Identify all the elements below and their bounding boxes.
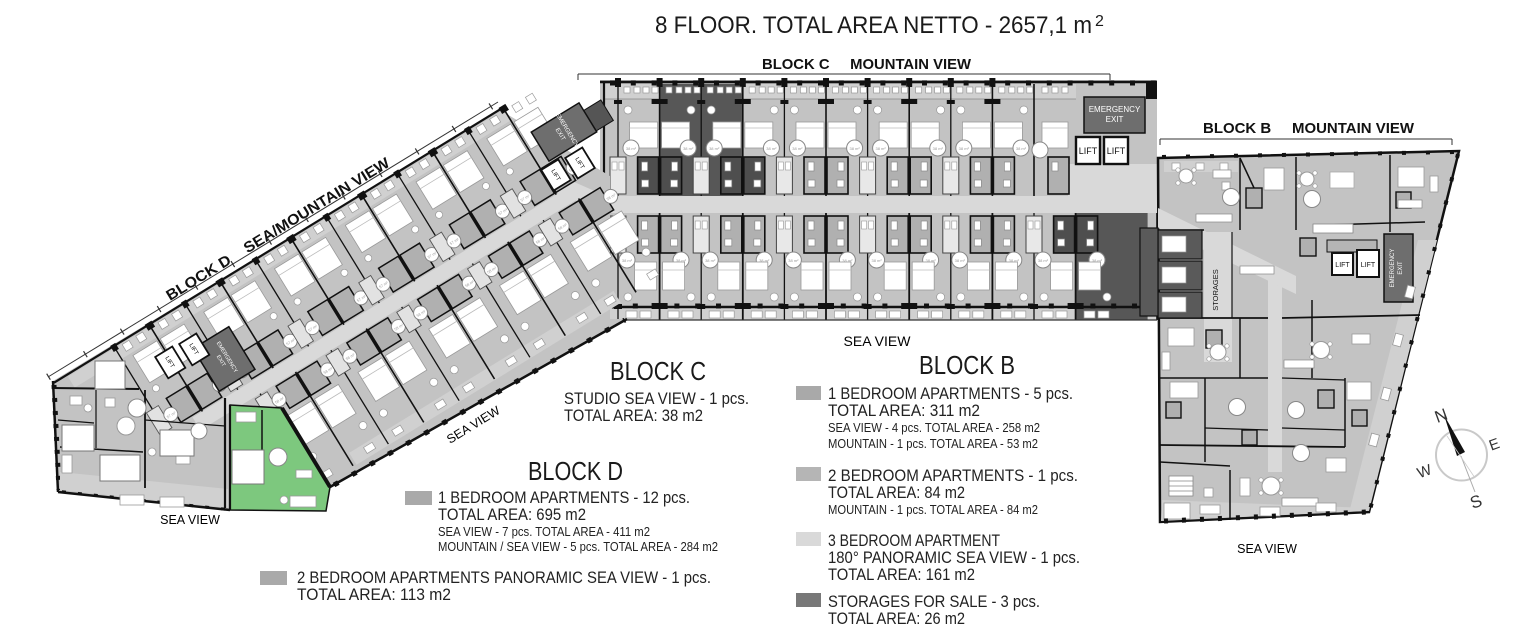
svg-text:BLOCK B MOUNTAIN VIEW: BLOCK B MOUNTAIN VIEW: [1203, 120, 1415, 137]
svg-text:LIFT: LIFT: [1335, 262, 1350, 269]
svg-text:MOUNTAIN - 1 pcs. TOTAL AREA -: MOUNTAIN - 1 pcs. TOTAL AREA - 53 m2: [828, 436, 1038, 451]
svg-text:BLOCK B: BLOCK B: [919, 350, 1015, 380]
svg-text:STORAGES: STORAGES: [1211, 269, 1220, 311]
svg-text:TOTAL AREA: 311 m2: TOTAL AREA: 311 m2: [828, 401, 980, 420]
svg-text:38 m²: 38 m²: [955, 258, 966, 263]
svg-text:38 m²: 38 m²: [788, 258, 799, 263]
svg-text:TOTAL AREA: 695 m2: TOTAL AREA: 695 m2: [438, 505, 586, 524]
svg-text:38 m²: 38 m²: [709, 146, 720, 151]
svg-text:8 FLOOR. TOTAL AREA NETTO - 26: 8 FLOOR. TOTAL AREA NETTO - 2657,1 m: [655, 12, 1092, 39]
svg-text:SEA VIEW: SEA VIEW: [160, 513, 220, 527]
svg-text:38 m²: 38 m²: [1016, 146, 1027, 151]
svg-text:38 m²: 38 m²: [959, 146, 970, 151]
svg-text:BLOCK D: BLOCK D: [528, 456, 623, 486]
svg-text:LIFT: LIFT: [1107, 146, 1126, 156]
svg-text:38 m²: 38 m²: [875, 146, 886, 151]
svg-text:2: 2: [1095, 13, 1104, 30]
svg-text:EXIT: EXIT: [1106, 115, 1124, 124]
svg-text:MOUNTAIN - 1 pcs. TOTAL AREA -: MOUNTAIN - 1 pcs. TOTAL AREA - 84 m2: [828, 502, 1038, 517]
svg-text:38 m²: 38 m²: [766, 146, 777, 151]
svg-text:38 m²: 38 m²: [622, 258, 633, 263]
svg-text:TOTAL AREA: 113 m2: TOTAL AREA: 113 m2: [297, 585, 451, 604]
svg-text:EMERGENCY: EMERGENCY: [1089, 105, 1141, 114]
svg-text:38 m²: 38 m²: [683, 146, 694, 151]
svg-text:BLOCK C: BLOCK C: [610, 356, 706, 386]
svg-text:TOTAL AREA: 26 m2: TOTAL AREA: 26 m2: [828, 609, 965, 628]
svg-text:38 m²: 38 m²: [792, 146, 803, 151]
svg-text:BLOCK C MOUNTAIN VIEW: BLOCK C MOUNTAIN VIEW: [762, 56, 972, 73]
svg-text:38 m²: 38 m²: [626, 146, 637, 151]
svg-text:LIFT: LIFT: [1361, 262, 1376, 269]
svg-text:38 m²: 38 m²: [849, 146, 860, 151]
svg-text:MOUNTAIN / SEA VIEW - 5 pcs. T: MOUNTAIN / SEA VIEW - 5 pcs. TOTAL AREA …: [438, 539, 718, 554]
svg-text:38 m²: 38 m²: [1038, 258, 1049, 263]
svg-text:EXIT: EXIT: [1398, 261, 1404, 275]
svg-text:SEA VIEW: SEA VIEW: [1237, 542, 1297, 556]
svg-text:SEA VIEW - 4 pcs. TOTAL AREA -: SEA VIEW - 4 pcs. TOTAL AREA - 258 m2: [828, 420, 1040, 435]
svg-text:38 m²: 38 m²: [871, 258, 882, 263]
svg-text:38 m²: 38 m²: [705, 258, 716, 263]
svg-text:LIFT: LIFT: [1079, 146, 1098, 156]
svg-text:TOTAL AREA: 161 m2: TOTAL AREA: 161 m2: [828, 565, 975, 584]
svg-text:EMERGENCY: EMERGENCY: [1390, 249, 1396, 288]
svg-text:TOTAL AREA: 84 m2: TOTAL AREA: 84 m2: [828, 483, 965, 502]
svg-text:SEA VIEW: SEA VIEW: [844, 333, 912, 349]
svg-text:TOTAL AREA: 38 m2: TOTAL AREA: 38 m2: [564, 406, 703, 425]
svg-text:38 m²: 38 m²: [933, 146, 944, 151]
svg-text:SEA VIEW - 7 pcs. TOTAL AREA -: SEA VIEW - 7 pcs. TOTAL AREA - 411 m2: [438, 524, 650, 539]
